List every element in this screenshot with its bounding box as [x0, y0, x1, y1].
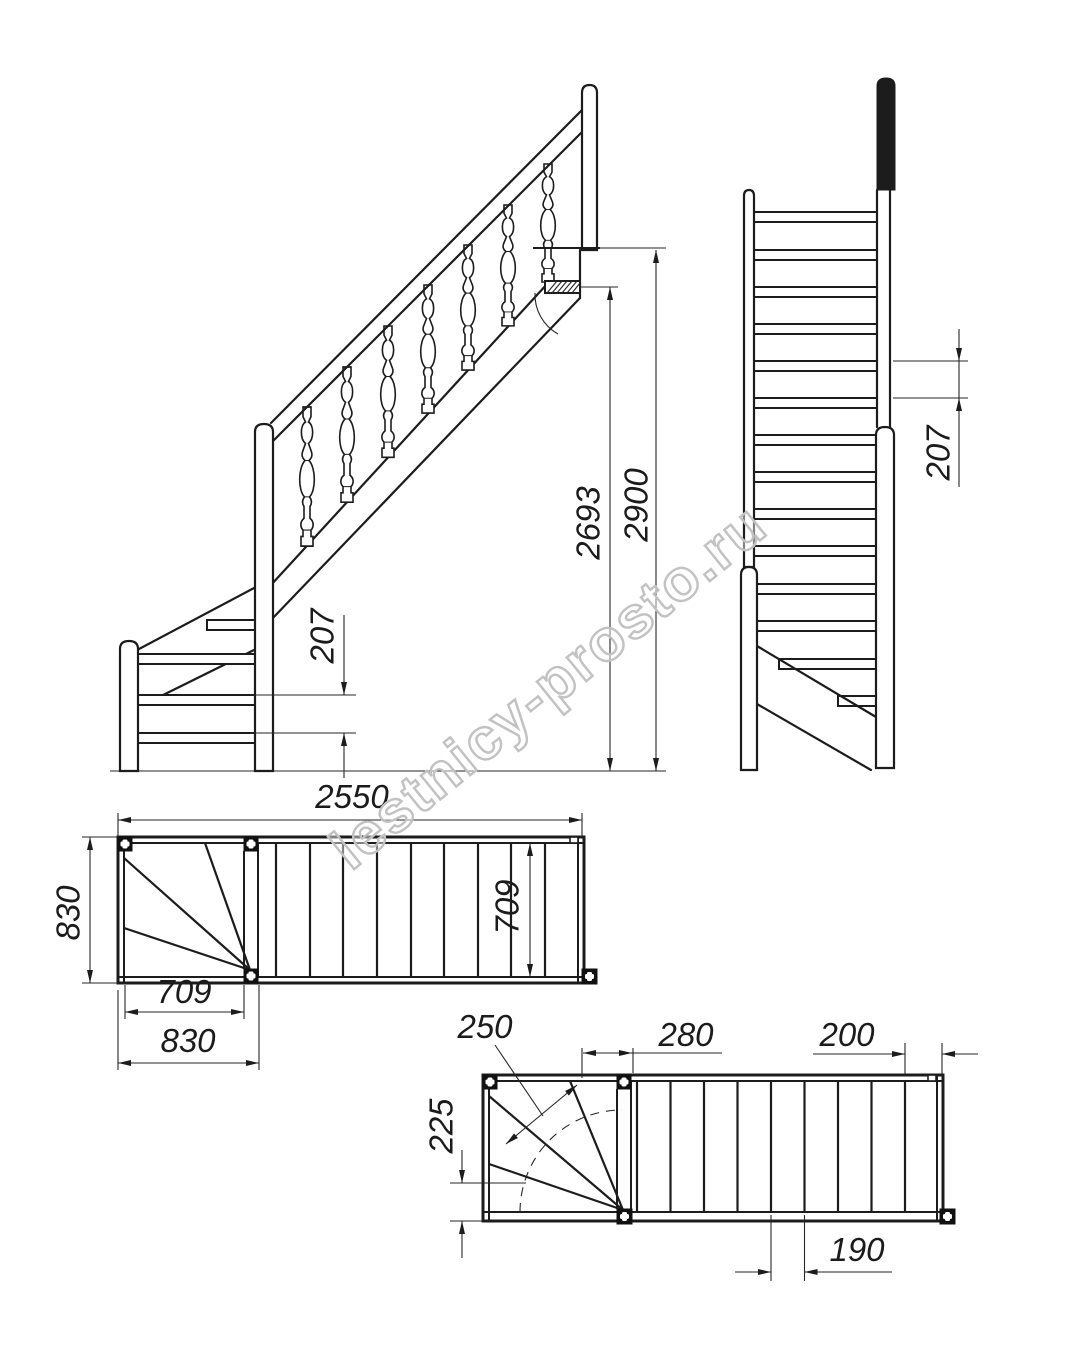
plan-view-upper: 2550 830 709 709 830: [50, 778, 597, 1070]
dim-winder-width-label: 709: [156, 973, 211, 1010]
watermark-text: lestnicy-prosto.ru: [318, 491, 779, 881]
front-handrail-end: [877, 78, 895, 190]
plan-lower-newels: [483, 1075, 955, 1224]
front-view: 207: [741, 78, 968, 770]
plan-lower-outline: [483, 1075, 943, 1221]
dim-walkline-tread-label: 250: [456, 1008, 513, 1045]
dim-landing-label: 200: [818, 1016, 875, 1053]
dim-going-label: 190: [829, 1231, 885, 1268]
dim-riser-front-label: 207: [920, 424, 957, 482]
angle-arc: [535, 293, 558, 334]
stair-technical-drawing: 207 2693 2900: [0, 0, 1078, 1368]
plan-lower-inner-edges: [483, 1075, 943, 1221]
dim-going: 190: [735, 1215, 892, 1281]
drawing-page: 207 2693 2900: [0, 0, 1078, 1368]
dim-winder-width: 709: [125, 973, 244, 1019]
front-right-post: [876, 427, 894, 768]
dim-flight-width: 709: [489, 843, 530, 977]
front-treads: [754, 212, 877, 706]
dim-winder-side-label: 225: [423, 1098, 460, 1155]
dim-height-to-last-tread-label: 2693: [570, 486, 607, 561]
plan-view-lower: 250 280 200 225: [423, 1008, 978, 1281]
dim-top-going-label: 280: [657, 1016, 714, 1053]
top-newel-post: [582, 85, 597, 250]
bottom-newel-post: [120, 641, 138, 771]
dim-overall-width-label: 830: [50, 885, 87, 941]
dim-total-height-label: 2900: [618, 468, 655, 543]
winder-steps: [138, 587, 256, 743]
middle-newel-post: [255, 424, 273, 771]
dim-landing: 200: [813, 1016, 978, 1076]
plan-lower-winder-treads: [489, 1081, 623, 1210]
dim-riser-elevation-label: 207: [304, 607, 341, 665]
dim-riser-front: 207: [893, 329, 968, 487]
dim-flight-width-label: 709: [489, 879, 526, 934]
front-right-rail: [877, 190, 890, 427]
front-left-post: [741, 567, 757, 770]
dim-overall-width: 830: [50, 837, 118, 983]
dim-top-going: 280: [582, 1016, 722, 1078]
plan-upper-notch: [570, 837, 578, 843]
dim-winder-side: 225: [423, 1098, 526, 1258]
dim-winder-depth-label: 830: [160, 1022, 216, 1059]
plan-lower-straight-treads: [637, 1081, 905, 1212]
plan-upper-winder-treads: [124, 843, 250, 970]
plan-lower-notch: [928, 1075, 936, 1081]
